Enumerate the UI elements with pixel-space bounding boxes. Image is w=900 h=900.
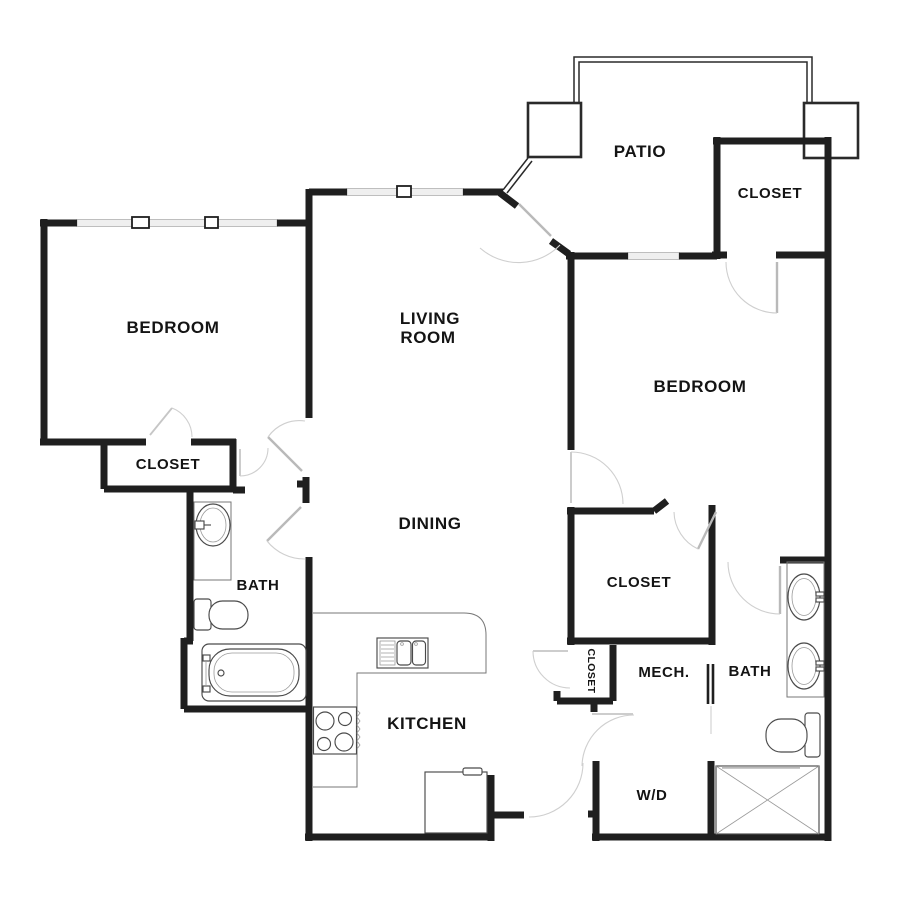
floor-plan-page: PATIO CLOSET BEDROOM LIVING ROOM BEDROOM…: [0, 0, 900, 900]
window-mullion: [205, 217, 218, 228]
window: [628, 253, 679, 260]
refrigerator-icon: [425, 768, 487, 833]
faucet: [816, 667, 824, 671]
tub-faucet: [203, 655, 210, 661]
stove-icon: [314, 707, 361, 754]
faucet: [816, 592, 824, 596]
room-label-bath-left: BATH: [237, 577, 280, 594]
room-label-bath-right: BATH: [729, 663, 772, 680]
toilet-bowl: [209, 601, 248, 629]
faucet: [816, 598, 824, 602]
room-label-patio: PATIO: [614, 142, 666, 161]
toilet-bowl: [766, 719, 807, 752]
room-label-closet-walkin: CLOSET: [607, 574, 671, 591]
room-label-mech: MECH.: [638, 664, 689, 681]
room-label-bedroom-right: BEDROOM: [654, 377, 747, 396]
fridge-body: [425, 772, 487, 833]
tub-faucet: [203, 686, 210, 692]
window-mullion: [132, 217, 149, 228]
room-label-closet-hall: CLOSET: [585, 649, 597, 694]
faucet: [816, 661, 824, 665]
room-label-dining: DINING: [398, 514, 461, 533]
room-label-kitchen: KITCHEN: [387, 714, 467, 733]
room-label-living-2: ROOM: [400, 328, 455, 347]
toilet-icon: [194, 599, 248, 630]
patio-column-icon: [528, 103, 581, 157]
room-label-closet-top-right: CLOSET: [738, 185, 802, 202]
background: [0, 0, 900, 900]
kitchen-sink-icon: [377, 638, 428, 668]
room-label-bedroom-left: BEDROOM: [127, 318, 220, 337]
room-label-living-1: LIVING: [400, 309, 460, 328]
fridge-handle: [463, 768, 482, 775]
room-label-wd: W/D: [637, 787, 668, 804]
window-mullion: [397, 186, 411, 197]
window: [77, 220, 277, 227]
bathtub-icon: [202, 644, 306, 701]
floor-plan-svg: PATIO CLOSET BEDROOM LIVING ROOM BEDROOM…: [0, 0, 900, 900]
room-label-closet-left: CLOSET: [136, 456, 200, 473]
faucet: [195, 521, 204, 529]
